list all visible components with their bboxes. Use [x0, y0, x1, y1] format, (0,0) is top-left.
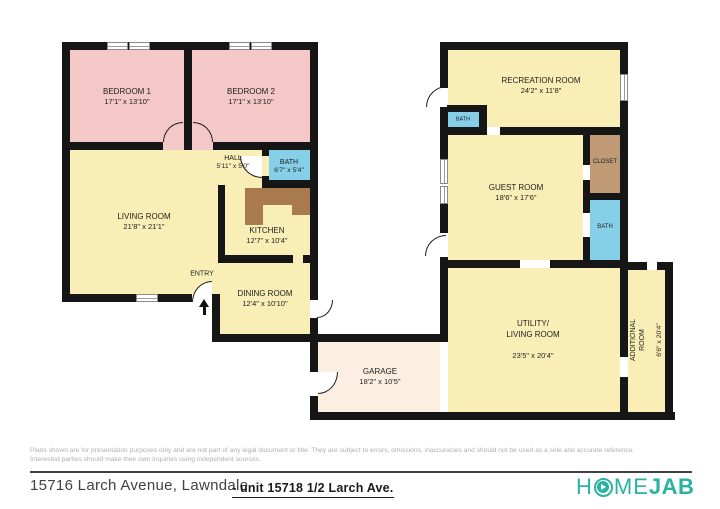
wall-segment — [262, 180, 318, 188]
room-dims: 6'6" x 20'4" — [656, 319, 665, 361]
wall-segment — [440, 267, 448, 342]
door-arc-dining — [317, 300, 333, 318]
wall-segment — [583, 127, 590, 165]
window — [107, 42, 128, 50]
wall-segment — [440, 42, 628, 50]
room-name: RECREATION ROOM — [502, 76, 581, 86]
room-dims: 18'2" x 10'5" — [359, 377, 400, 387]
wall-segment — [479, 105, 487, 135]
room-label-recreation: RECREATION ROOM 24'2" x 11'8" — [502, 76, 581, 96]
wall-segment — [262, 148, 269, 156]
wall-segment — [440, 260, 520, 268]
wall-segment — [62, 142, 163, 150]
room-dims: 23'5" x 20'4" — [506, 351, 559, 361]
room-name: UTILITY/ LIVING ROOM — [506, 320, 559, 341]
room-name: BEDROOM 2 — [227, 87, 275, 97]
room-dims: 17'1" x 13'10" — [227, 97, 275, 107]
room-name: CLOSET — [593, 159, 617, 167]
room-label-kitchen: KITCHEN 12'7" x 10'4" — [246, 226, 287, 246]
wall-segment — [440, 203, 448, 233]
room-label-bedroom-2: BEDROOM 2 17'1" x 13'10" — [227, 87, 275, 107]
logo-letters-jab: JAB — [649, 474, 695, 500]
wall-segment — [440, 42, 448, 88]
wall-segment — [212, 334, 448, 342]
wall-segment — [620, 377, 628, 420]
wall-segment — [550, 260, 628, 268]
play-icon — [594, 478, 613, 497]
room-label-entry: ENTRY — [190, 269, 214, 278]
room-name: DINING ROOM — [237, 289, 292, 299]
wall-segment — [500, 127, 628, 135]
room-dims: 17'1" x 13'10" — [103, 97, 151, 107]
kitchen-counter — [245, 188, 310, 205]
room-dims: 5'11" x 5'0" — [217, 163, 250, 172]
window — [440, 186, 448, 204]
room-name: BEDROOM 1 — [103, 87, 151, 97]
entry-arrow-icon — [199, 299, 210, 316]
kitchen-counter — [245, 205, 263, 225]
wall-segment — [583, 193, 628, 200]
room-name: HALL — [217, 154, 250, 163]
wall-segment — [62, 294, 192, 302]
room-name: LIVING ROOM — [117, 212, 170, 222]
disclaimer-text: Plans shown are for presentation purpose… — [30, 446, 675, 465]
room-label-bath-main: BATH 6'7" x 5'4" — [274, 158, 304, 176]
wall-segment — [62, 42, 70, 302]
unit-address-text: - unit 15718 1/2 Larch Ave. — [232, 481, 394, 498]
room-label-guest: GUEST ROOM 18'6" x 17'6" — [489, 183, 544, 203]
room-label-living: LIVING ROOM 21'8" x 21'1" — [117, 212, 170, 232]
room-dims: 12'7" x 10'4" — [246, 236, 287, 246]
room-name: ENTRY — [190, 269, 214, 278]
window — [129, 42, 150, 50]
wall-segment — [218, 255, 293, 263]
room-label-bath-guest: BATH — [597, 224, 613, 232]
wall-segment — [218, 185, 225, 258]
room-name: ADDITIONAL ROOM — [629, 319, 647, 361]
room-name: BATH — [274, 158, 304, 167]
room-name: KITCHEN — [246, 226, 287, 236]
window — [440, 159, 448, 184]
door-arc-guest — [425, 235, 446, 256]
wall-segment — [583, 200, 590, 213]
window — [136, 294, 158, 302]
door-arc-recreation — [426, 86, 447, 107]
room-dims: 18'6" x 17'6" — [489, 193, 544, 203]
room-label-bedroom-1: BEDROOM 1 17'1" x 13'10" — [103, 87, 151, 107]
room-label-bath-recreation: BATH — [456, 116, 470, 123]
wall-segment — [620, 262, 647, 270]
floor-plan-page: BEDROOM 1 17'1" x 13'10" BEDROOM 2 17'1"… — [0, 0, 720, 509]
kitchen-counter — [292, 205, 310, 215]
window — [251, 42, 272, 50]
room-name: GUEST ROOM — [489, 183, 544, 193]
wall-segment — [184, 42, 192, 150]
wall-segment — [310, 342, 318, 372]
wall-segment — [303, 255, 318, 263]
window — [229, 42, 250, 50]
room-label-garage: GARAGE 18'2" x 10'5" — [359, 367, 400, 387]
room-label-additional: ADDITIONAL ROOM 6'6" x 20'4" — [620, 319, 674, 361]
room-dims: 24'2" x 11'8" — [502, 86, 581, 96]
room-label-closet: CLOSET — [593, 159, 617, 167]
address-text: 15716 Larch Avenue, Lawndale — [30, 477, 248, 494]
footer-divider — [30, 471, 692, 473]
logo-letters-me: ME — [614, 474, 649, 500]
window — [620, 74, 628, 101]
room-name: GARAGE — [359, 367, 400, 377]
room-label-hall: HALL 5'11" x 5'0" — [217, 154, 250, 172]
room-label-utility: UTILITY/ LIVING ROOM 23'5" x 20'4" — [506, 309, 559, 371]
room-name: BATH — [597, 224, 613, 232]
room-dims: 12'4" x 10'10" — [237, 299, 292, 309]
room-label-dining: DINING ROOM 12'4" x 10'10" — [237, 289, 292, 309]
logo-letter-h: H — [576, 474, 593, 500]
homejab-logo: H ME JAB — [576, 474, 694, 500]
room-dims: 21'8" x 21'1" — [117, 222, 170, 232]
room-dims: 6'7" x 5'4" — [274, 167, 304, 176]
room-name: BATH — [456, 116, 470, 123]
